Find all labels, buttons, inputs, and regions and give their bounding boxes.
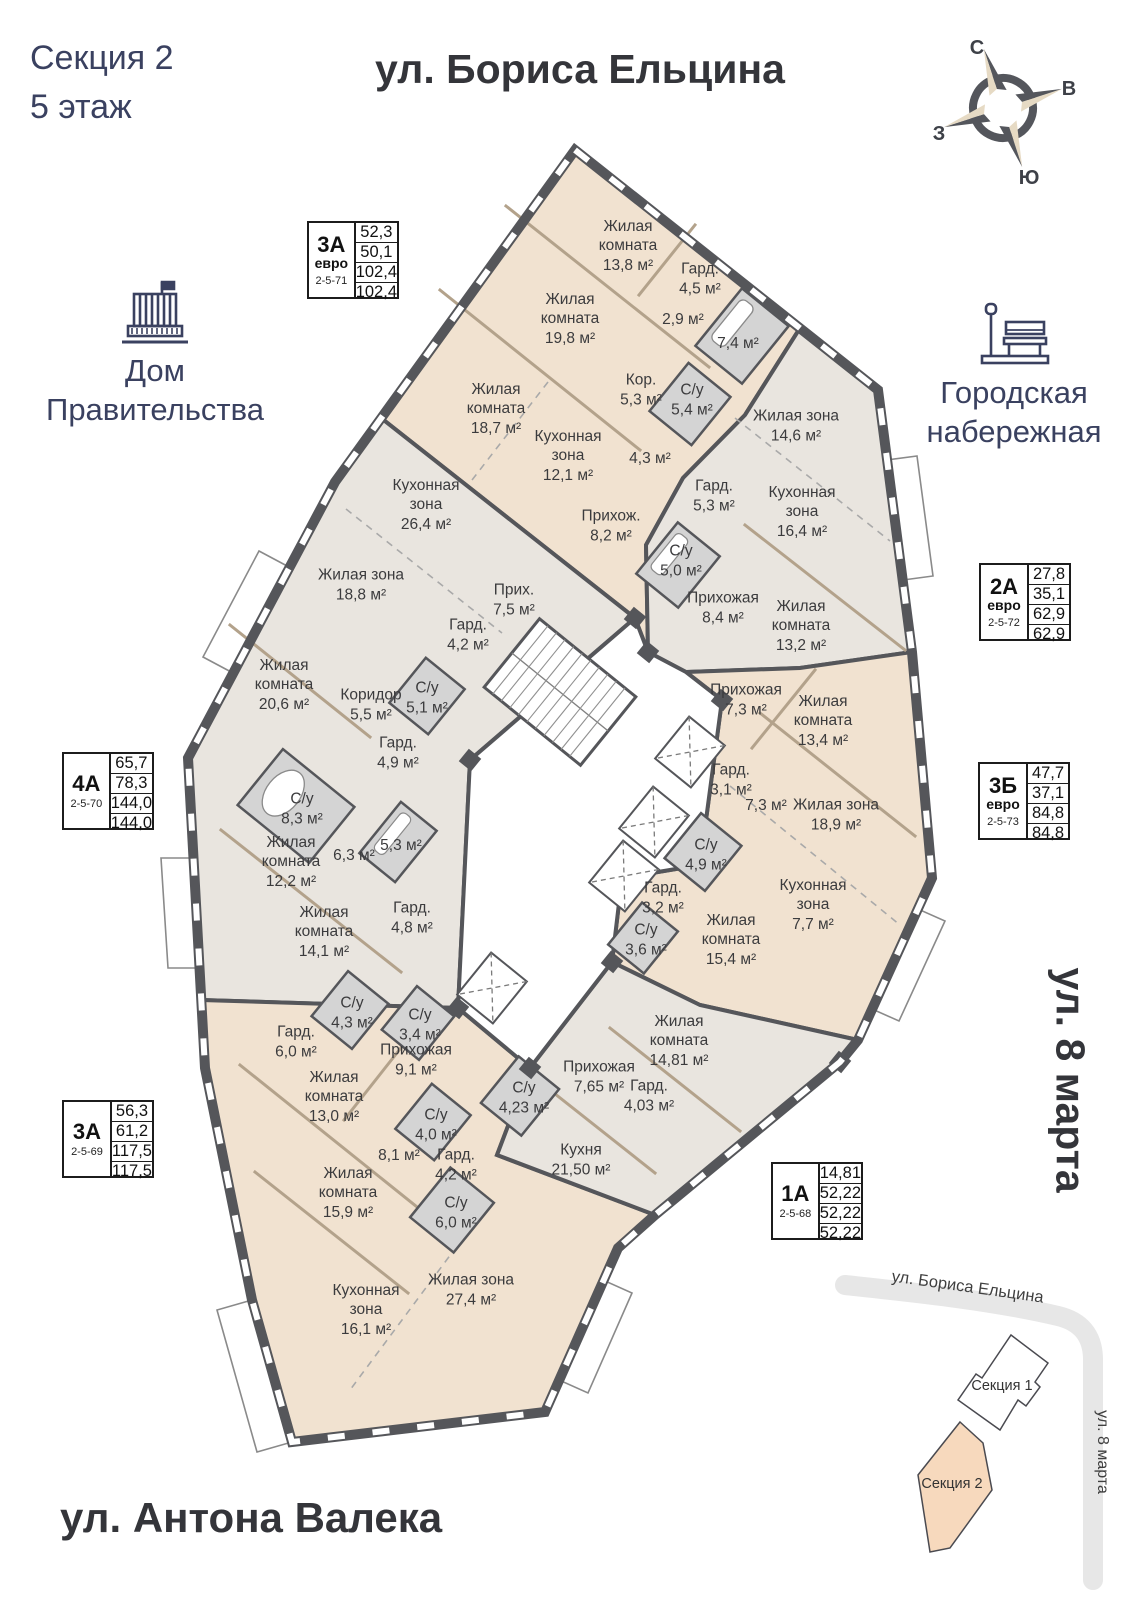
apartment-code: 2-5-71 (315, 275, 347, 287)
street-label-top: ул. Бориса Ельцина (375, 46, 785, 93)
landmark-embankment: Городская набережная (898, 374, 1130, 452)
apartment-code: 2-5-68 (779, 1208, 811, 1220)
apartment-card-2-5-73[interactable]: 3Бевро2-5-73 47,737,184,884,8 (978, 762, 1070, 840)
apartment-area-value: 47,7 (1028, 764, 1068, 784)
apartment-area-value: 78,3 (111, 774, 152, 794)
compass-west-label: З (933, 123, 946, 145)
street-label-right: ул. 8 марта (1047, 967, 1094, 1192)
apartment-code: 2-5-70 (70, 798, 102, 810)
floor-plan-page: Секция 2 5 этаж ул. Бориса Ельцина ул. А… (0, 0, 1131, 1599)
compass-south-label: Ю (1019, 167, 1040, 189)
compass-rose: С В Ю З (925, 28, 1085, 193)
apartment-area-value: 27,8 (1029, 565, 1069, 585)
compass-east-label: В (1062, 78, 1076, 100)
apartment-area-value: 84,8 (1028, 804, 1068, 824)
apartment-area-value: 61,2 (112, 1122, 152, 1142)
floor-label: 5 этаж (30, 83, 174, 132)
apartment-type: 3Б (989, 774, 1017, 797)
compass-north-label: С (970, 37, 984, 59)
apartment-area-value: 65,7 (111, 754, 152, 774)
apartment-code: 2-5-72 (988, 617, 1020, 629)
landmark-government: Дом Правительства (35, 352, 275, 430)
apartment-area-value: 62,9 (1029, 605, 1069, 625)
apartment-area-value: 14,81 (820, 1164, 861, 1184)
apartment-card-2-5-70[interactable]: 4А2-5-70 65,778,3144,0144,0 (62, 752, 154, 830)
embankment-bench-icon (978, 300, 1052, 368)
apartment-area-value: 52,22 (820, 1184, 861, 1204)
apartment-area-value: 35,1 (1029, 585, 1069, 605)
apartment-card-2-5-68[interactable]: 1А2-5-68 14,8152,2252,2252,22 (771, 1162, 863, 1240)
government-building-icon (118, 278, 194, 350)
apartment-area-value: 56,3 (112, 1102, 152, 1122)
apartment-area-value: 117,5 (112, 1162, 152, 1181)
apartment-card-2-5-69[interactable]: 3А2-5-69 56,361,2117,5117,5 (62, 1100, 154, 1178)
apartment-area-value: 52,22 (820, 1204, 861, 1224)
apartment-type: 3А (317, 233, 345, 256)
apartment-code: 2-5-69 (71, 1146, 103, 1158)
minimap-section1-label: Секция 1 (971, 1378, 1032, 1394)
apartment-card-2-5-72[interactable]: 2Аевро2-5-72 27,835,162,962,9 (979, 563, 1071, 641)
street-label-bottom: ул. Антона Валека (60, 1494, 442, 1542)
apartment-euro-tag: евро (986, 797, 1020, 812)
apartment-type: 3А (73, 1120, 101, 1143)
section-floor-title: Секция 2 5 этаж (30, 34, 174, 133)
apartment-area-value: 102,4 (356, 263, 397, 283)
apartment-area-value: 144,0 (111, 794, 152, 814)
apartment-code: 2-5-73 (987, 816, 1019, 828)
apartment-euro-tag: евро (315, 256, 349, 271)
minimap-section2-label: Секция 2 (921, 1476, 982, 1492)
apartment-area-value: 50,1 (356, 243, 397, 263)
section-label: Секция 2 (30, 34, 174, 83)
apartment-area-value: 84,8 (1028, 824, 1068, 843)
apartment-area-value: 37,1 (1028, 784, 1068, 804)
apartment-area-value: 117,5 (112, 1142, 152, 1162)
apartment-area-value: 144,0 (111, 814, 152, 833)
minimap-street-right-label: ул. 8 марта (1094, 1410, 1111, 1494)
location-minimap[interactable]: ул. Бориса Ельцина ул. 8 марта Секция 1 … (830, 1240, 1131, 1599)
apartment-area-value: 62,9 (1029, 625, 1069, 644)
apartment-card-2-5-71[interactable]: 3Аевро2-5-71 52,350,1102,4102,4 (307, 221, 399, 299)
apartment-type: 4А (72, 772, 100, 795)
apartment-area-value: 52,3 (356, 223, 397, 243)
apartment-euro-tag: евро (987, 598, 1021, 613)
apartment-type: 2А (990, 575, 1018, 598)
apartment-type: 1А (781, 1182, 809, 1205)
apartment-area-value: 102,4 (356, 283, 397, 302)
